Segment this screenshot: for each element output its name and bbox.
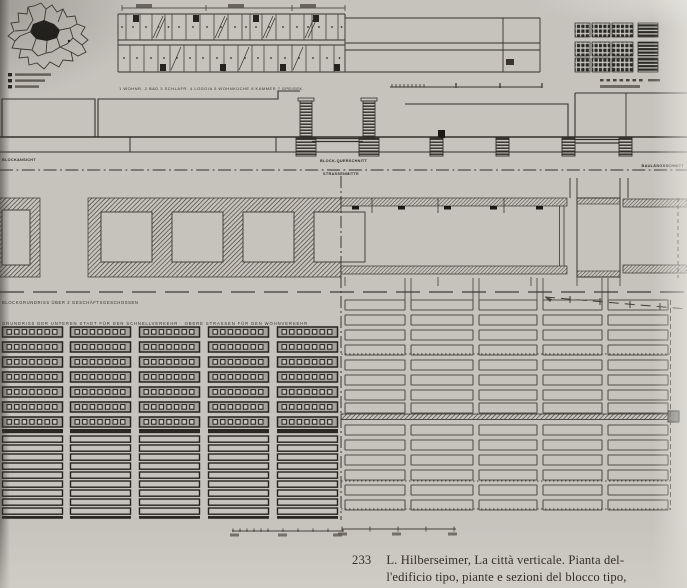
site-plan: [575, 23, 658, 72]
caption-line-1: L. Hilberseimer, La città verticale. Pia…: [386, 553, 624, 567]
tower-base: [296, 138, 316, 156]
survey-tick-line: [545, 296, 687, 310]
lower-plan-label: GRUNDRISS DER UNTEREN STADT FÜR DEN SCHN…: [2, 321, 308, 326]
scale-bar-left: [230, 529, 343, 537]
figure-caption-text: L. Hilberseimer, La città verticale. Pia…: [386, 552, 686, 585]
strip-scale-bar: [390, 83, 542, 88]
section-base-blocks: [430, 138, 632, 156]
elevation-label: BLOCKANSICHT: [2, 158, 36, 162]
plan-band-dynamic: [101, 198, 620, 301]
map-legend: [8, 73, 51, 88]
building-plan-strip: [118, 5, 540, 72]
street-center-label: STRASSENMITTE: [323, 172, 359, 176]
site-plan-scale: [600, 79, 660, 81]
section-band: [0, 85, 687, 198]
unit-legend-label: 1 WOHNR. 2 BAD 3 SCHLAFR. 4 LOGGIA 5 WOH…: [119, 86, 304, 91]
city-center-blob: [30, 20, 60, 41]
lower-city-plan-left: [2, 327, 338, 519]
stair-tower: [300, 101, 312, 138]
architectural-drawing: 1 WOHNR. 2 BAD 3 SCHLAFR. 4 LOGGIA 5 WOH…: [0, 0, 687, 588]
figure-caption: 233 L. Hilberseimer, La città verticale.…: [352, 552, 686, 585]
book-page-photo: 1 WOHNR. 2 BAD 3 SCHLAFR. 4 LOGGIA 5 WOH…: [0, 0, 687, 588]
cross-section-label: BLOCK-QUERSCHNITT: [320, 159, 368, 163]
berlin-district-map: [8, 3, 88, 69]
tower-base: [359, 138, 379, 156]
upper-plan-label: BLOCKGRUNDRISS ÜBER 2 GESCHÄFTSGESCHOSSE…: [2, 300, 139, 305]
caption-line-2: l'edificio tipo, piante e sezioni del bl…: [386, 570, 626, 584]
figure-number: 233: [352, 552, 371, 585]
long-section-label: BAULÄNGSSCHNITT: [642, 164, 685, 168]
upper-city-plan-right: [341, 300, 679, 510]
street-island: [577, 198, 620, 277]
stair-tower: [363, 101, 375, 138]
scale-bar-right: [338, 527, 457, 536]
